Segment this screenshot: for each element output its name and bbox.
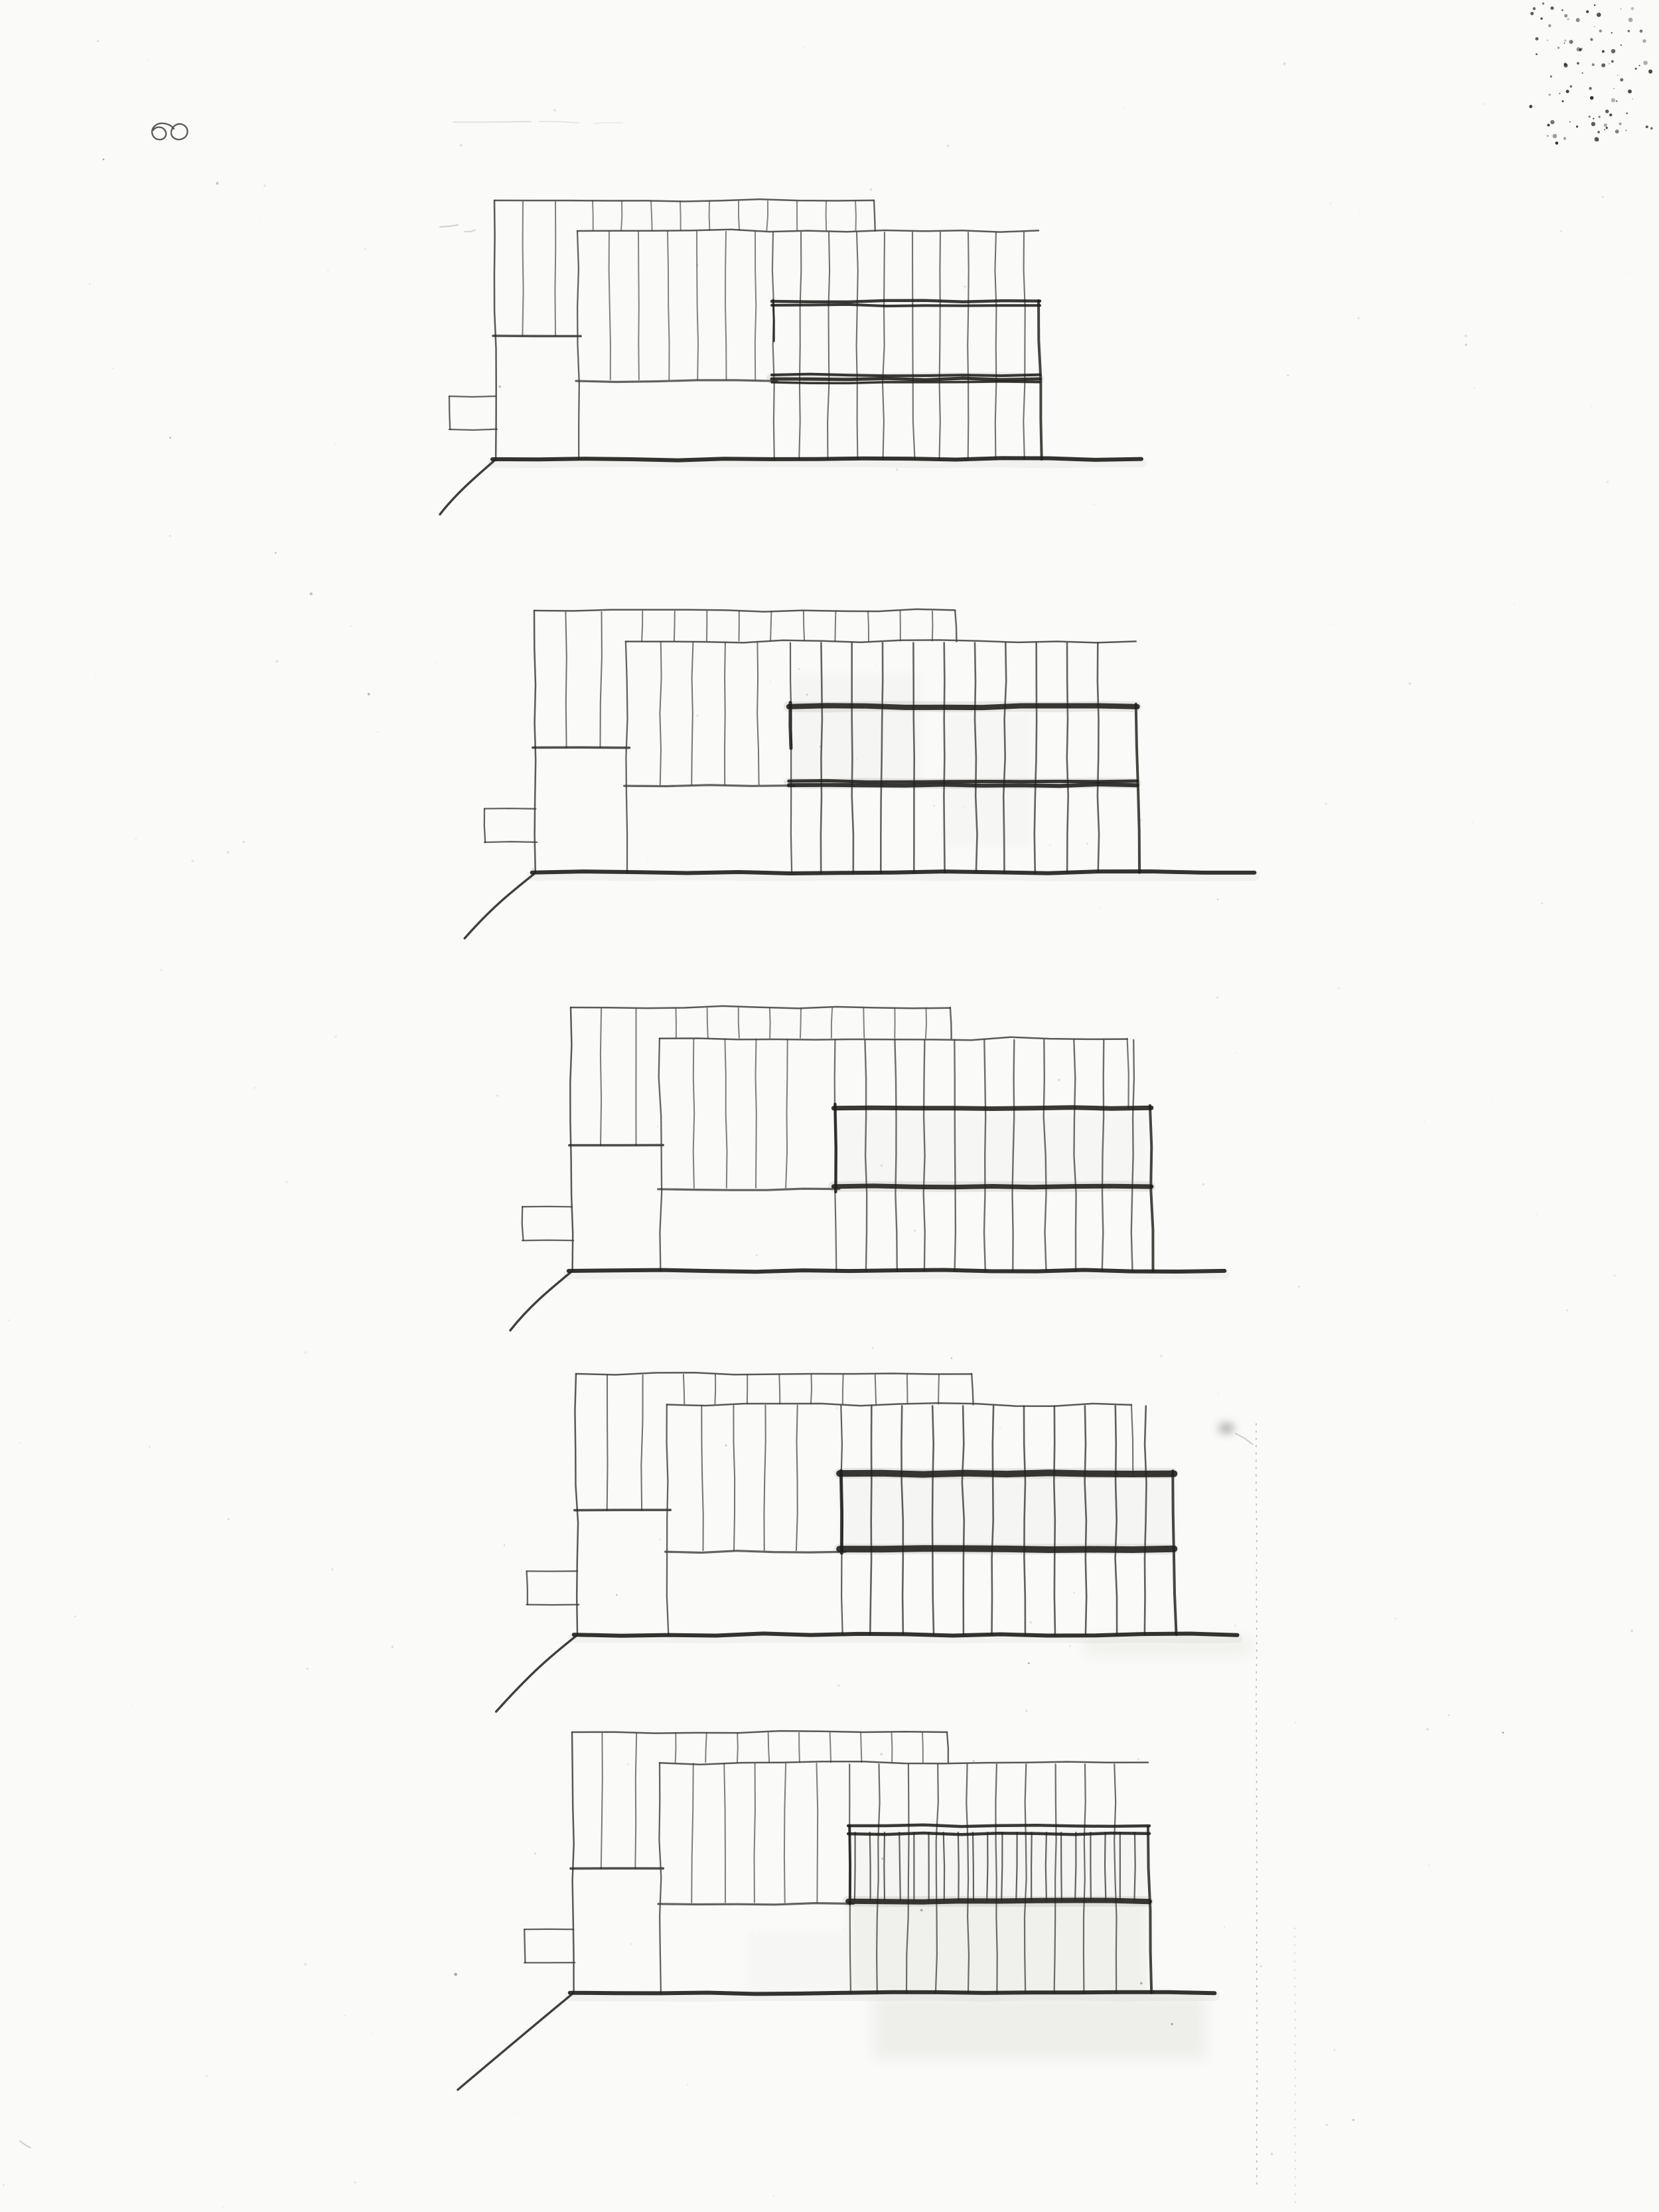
- elevation-study-4: [496, 1372, 1252, 1712]
- graphite-wash: [790, 674, 1032, 846]
- elevation-study-5: [458, 1731, 1215, 2090]
- ground-line: [465, 871, 1254, 938]
- graphite-wash: [747, 1826, 1206, 2059]
- louver-band: [772, 300, 1040, 383]
- front-volume: [772, 232, 1042, 459]
- elevation-study-3: [510, 1006, 1224, 1331]
- graphite-wash: [835, 1112, 1147, 1188]
- entry-stub: [524, 1929, 575, 1963]
- elevation-study-2: [465, 609, 1254, 938]
- elevation-study-1: [440, 199, 1141, 514]
- back-volume: [493, 199, 875, 459]
- ground-line: [440, 458, 1141, 514]
- graphite-blob: [1219, 1424, 1253, 1444]
- ground-line: [510, 1270, 1224, 1331]
- entry-stub: [449, 396, 497, 430]
- handwritten-loop-mark: [152, 123, 187, 140]
- entry-stub: [484, 808, 537, 842]
- entry-stub: [522, 1207, 573, 1240]
- paper-noise: [3, 21, 1652, 2208]
- toner-cluster-top-right: [1529, 3, 1652, 145]
- scanner-streaks: [1256, 1424, 1295, 2203]
- scanned-page: [0, 0, 1659, 2212]
- faint-pencil-marks: [20, 121, 622, 2148]
- sketch-canvas: [0, 0, 1659, 2212]
- entry-stub: [527, 1571, 579, 1605]
